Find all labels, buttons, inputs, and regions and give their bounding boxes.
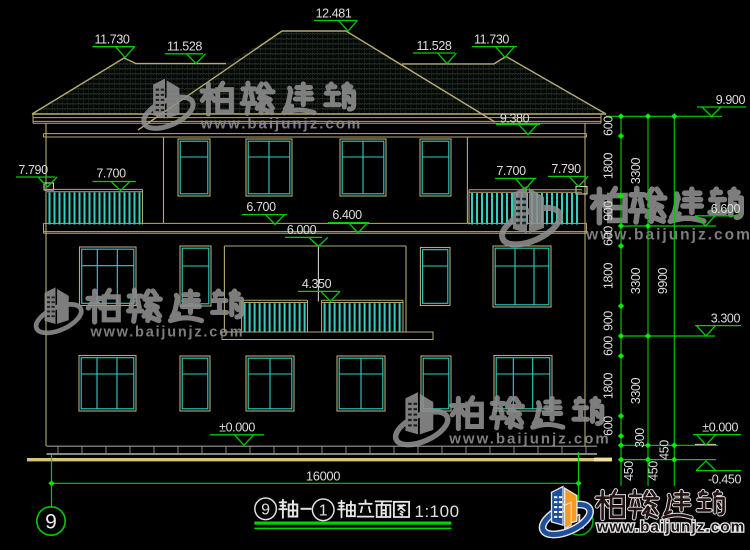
svg-text:±0.000: ±0.000 bbox=[702, 421, 738, 435]
svg-text:www.baijunjz.com: www.baijunjz.com bbox=[200, 116, 362, 133]
svg-text:3300: 3300 bbox=[629, 377, 643, 404]
svg-text:450: 450 bbox=[622, 461, 636, 481]
svg-text:11.730: 11.730 bbox=[474, 33, 509, 47]
svg-text:900: 900 bbox=[602, 311, 616, 331]
svg-text:4.350: 4.350 bbox=[302, 277, 332, 291]
svg-text:1800: 1800 bbox=[602, 152, 616, 179]
svg-text:16000: 16000 bbox=[306, 469, 340, 484]
svg-text:12.481: 12.481 bbox=[316, 7, 352, 21]
svg-text:1: 1 bbox=[319, 503, 328, 520]
svg-text:6.700: 6.700 bbox=[246, 200, 276, 214]
svg-text:9: 9 bbox=[261, 502, 270, 519]
svg-text:11.730: 11.730 bbox=[95, 33, 130, 47]
svg-text:9: 9 bbox=[45, 511, 57, 534]
svg-text:450: 450 bbox=[658, 440, 672, 460]
svg-text:7.790: 7.790 bbox=[551, 162, 581, 176]
svg-text:300: 300 bbox=[633, 428, 647, 448]
svg-text:3300: 3300 bbox=[629, 157, 643, 184]
svg-text:9.380: 9.380 bbox=[500, 112, 530, 126]
svg-text:7.700: 7.700 bbox=[496, 164, 526, 178]
svg-text:6.400: 6.400 bbox=[332, 208, 362, 222]
svg-text:6.600: 6.600 bbox=[711, 202, 741, 216]
svg-text:1800: 1800 bbox=[602, 262, 616, 289]
svg-text:9.900: 9.900 bbox=[716, 93, 746, 107]
svg-text:600: 600 bbox=[602, 116, 616, 136]
svg-text:600: 600 bbox=[602, 336, 616, 356]
svg-text:±0.000: ±0.000 bbox=[219, 421, 255, 435]
svg-text:3300: 3300 bbox=[629, 267, 643, 294]
svg-text:7.700: 7.700 bbox=[96, 167, 126, 181]
svg-text:11.528: 11.528 bbox=[167, 40, 202, 54]
svg-text:11.528: 11.528 bbox=[417, 39, 452, 53]
svg-text:1:100: 1:100 bbox=[415, 502, 460, 521]
svg-text:900: 900 bbox=[602, 201, 616, 221]
svg-text:www.baijunjz.com: www.baijunjz.com bbox=[448, 431, 610, 448]
svg-text:600: 600 bbox=[602, 226, 616, 246]
svg-text:600: 600 bbox=[602, 416, 616, 436]
svg-text:7.790: 7.790 bbox=[18, 163, 48, 177]
svg-text:3.300: 3.300 bbox=[711, 312, 741, 326]
svg-text:6.000: 6.000 bbox=[287, 223, 317, 237]
svg-text:www.baijunjz.com: www.baijunjz.com bbox=[90, 325, 245, 341]
svg-text:450: 450 bbox=[647, 461, 661, 481]
svg-text:1800: 1800 bbox=[602, 372, 616, 399]
svg-text:-0.450: -0.450 bbox=[708, 473, 741, 487]
svg-text:www.baijunjz.com: www.baijunjz.com bbox=[596, 519, 746, 536]
svg-text:9900: 9900 bbox=[656, 267, 670, 294]
